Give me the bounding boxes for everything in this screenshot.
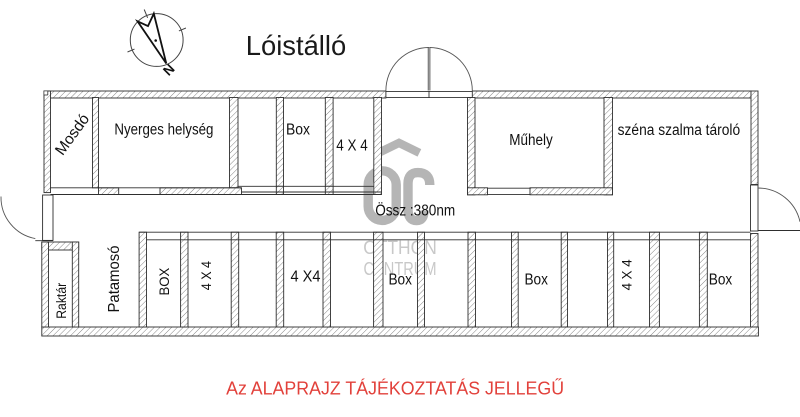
- svg-text:Nyerges helység: Nyerges helység: [114, 122, 213, 139]
- svg-text:Raktár: Raktár: [54, 282, 69, 318]
- svg-text:Az ALAPRAJZ TÁJÉKOZTATÁS JELLE: Az ALAPRAJZ TÁJÉKOZTATÁS JELLEGŰ: [226, 377, 564, 398]
- svg-text:Box: Box: [388, 272, 412, 289]
- svg-text:4 X 4: 4 X 4: [619, 259, 634, 290]
- svg-text:4 X4: 4 X4: [291, 269, 321, 286]
- svg-text:4 X 4: 4 X 4: [199, 261, 214, 291]
- svg-text:BOX: BOX: [157, 268, 172, 296]
- svg-text:Box: Box: [524, 272, 548, 289]
- svg-text:Box: Box: [286, 121, 310, 138]
- svg-text:Műhely: Műhely: [509, 132, 553, 149]
- svg-text:Box: Box: [709, 272, 733, 289]
- svg-text:4 X 4: 4 X 4: [336, 137, 368, 154]
- svg-text:Patamosó: Patamosó: [106, 245, 123, 312]
- svg-text:Lóistálló: Lóistálló: [246, 30, 346, 61]
- svg-text:Össz :380nm: Össz :380nm: [375, 202, 455, 220]
- svg-text:széna szalma tároló: széna szalma tároló: [618, 122, 741, 139]
